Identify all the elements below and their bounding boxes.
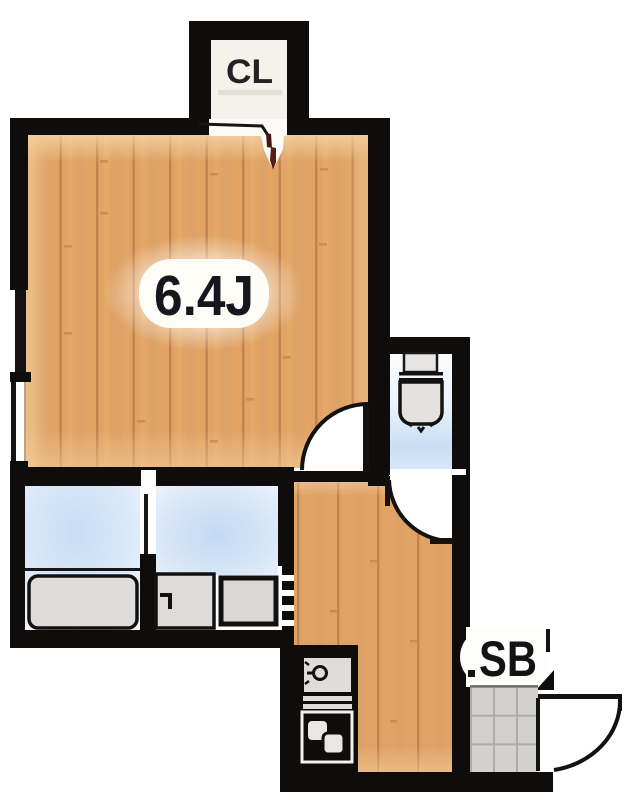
- svg-text:CL: CL: [226, 53, 273, 91]
- svg-text:6.4J: 6.4J: [154, 264, 254, 328]
- svg-text:SB: SB: [479, 631, 537, 687]
